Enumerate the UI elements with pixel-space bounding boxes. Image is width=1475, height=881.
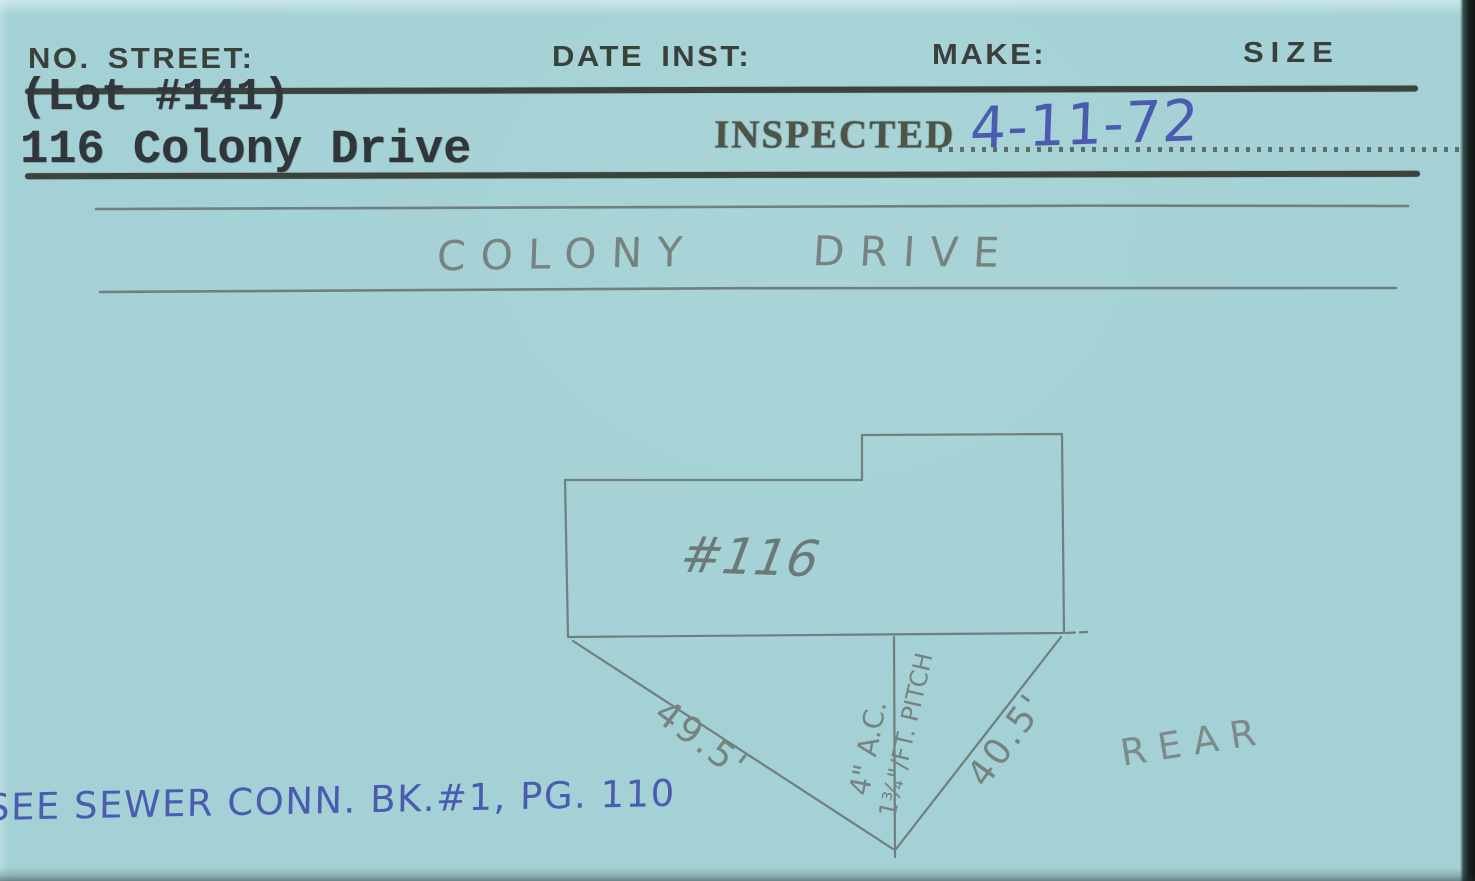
street-line-upper — [96, 206, 1408, 209]
street-name-drive: DRIVE — [812, 227, 1016, 277]
house-number-label: #116 — [676, 526, 823, 588]
scanned-card: NO. STREET: DATE INST: MAKE: SIZE (Lot #… — [0, 0, 1475, 881]
scan-edge-right — [1460, 0, 1475, 881]
street-line-lower — [100, 288, 1396, 292]
scan-edge-bottom — [0, 867, 1475, 881]
house-bottom-tick — [1066, 632, 1087, 633]
street-name-colony: COLONY — [436, 228, 698, 281]
